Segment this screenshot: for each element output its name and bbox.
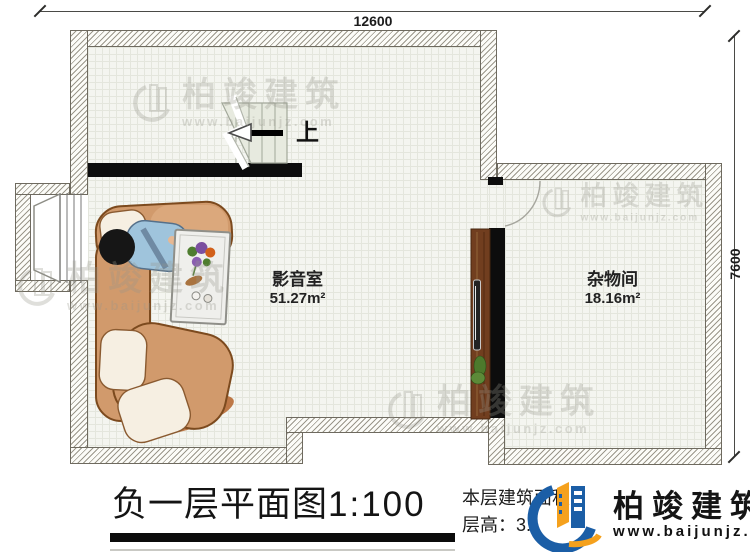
wall-left-upper bbox=[70, 30, 88, 195]
black-wall-door-stub bbox=[488, 177, 503, 185]
watermark-logo-icon bbox=[385, 386, 431, 436]
window-well-top bbox=[15, 183, 70, 195]
room-label-storage: 杂物间 18.16m² bbox=[560, 270, 665, 307]
brand-url: www.baijunjz.com bbox=[613, 524, 750, 540]
brand-logo-icon bbox=[519, 478, 611, 552]
floor-door-opening bbox=[489, 180, 505, 228]
wall-top bbox=[70, 30, 497, 47]
black-wall-stair bbox=[88, 163, 302, 177]
plan-title-text: 负一层平面图 bbox=[112, 485, 328, 524]
wall-bottom-left bbox=[70, 447, 303, 464]
title-underline-thin bbox=[110, 549, 455, 551]
watermark-logo-icon bbox=[540, 183, 576, 222]
watermark-logo-icon bbox=[15, 263, 61, 313]
wall-storage-top bbox=[497, 163, 722, 180]
watermark: 柏竣建筑 www.baijunjz.com bbox=[385, 385, 601, 436]
stair-up-label: 上 bbox=[296, 113, 319, 147]
room-label-media: 影音室 51.27m² bbox=[245, 270, 350, 307]
brand-name: 柏竣建筑 bbox=[613, 490, 750, 524]
brand-logo: 柏竣建筑 www.baijunjz.com bbox=[519, 478, 750, 552]
wall-storage-bottom bbox=[488, 448, 722, 465]
watermark-logo-icon bbox=[130, 79, 176, 129]
floor-plan-canvas: 柏竣建筑 www.baijunjz.com 柏竣建筑 www.baijunjz.… bbox=[0, 0, 750, 560]
title-underline bbox=[110, 533, 455, 542]
watermark: 柏竣建筑 www.baijunjz.com bbox=[540, 183, 708, 223]
dimension-line-top bbox=[40, 11, 705, 12]
wall-right-upper-vertical bbox=[480, 30, 497, 180]
watermark: 柏竣建筑 www.baijunjz.com bbox=[15, 262, 231, 313]
dimension-value-right: 7600 bbox=[727, 234, 745, 294]
plan-title: 负一层平面图1:100 bbox=[112, 476, 426, 527]
dimension-value-top: 12600 bbox=[338, 13, 408, 29]
floor-media-room-lower bbox=[88, 417, 286, 447]
plan-scale: 1:100 bbox=[328, 485, 426, 524]
